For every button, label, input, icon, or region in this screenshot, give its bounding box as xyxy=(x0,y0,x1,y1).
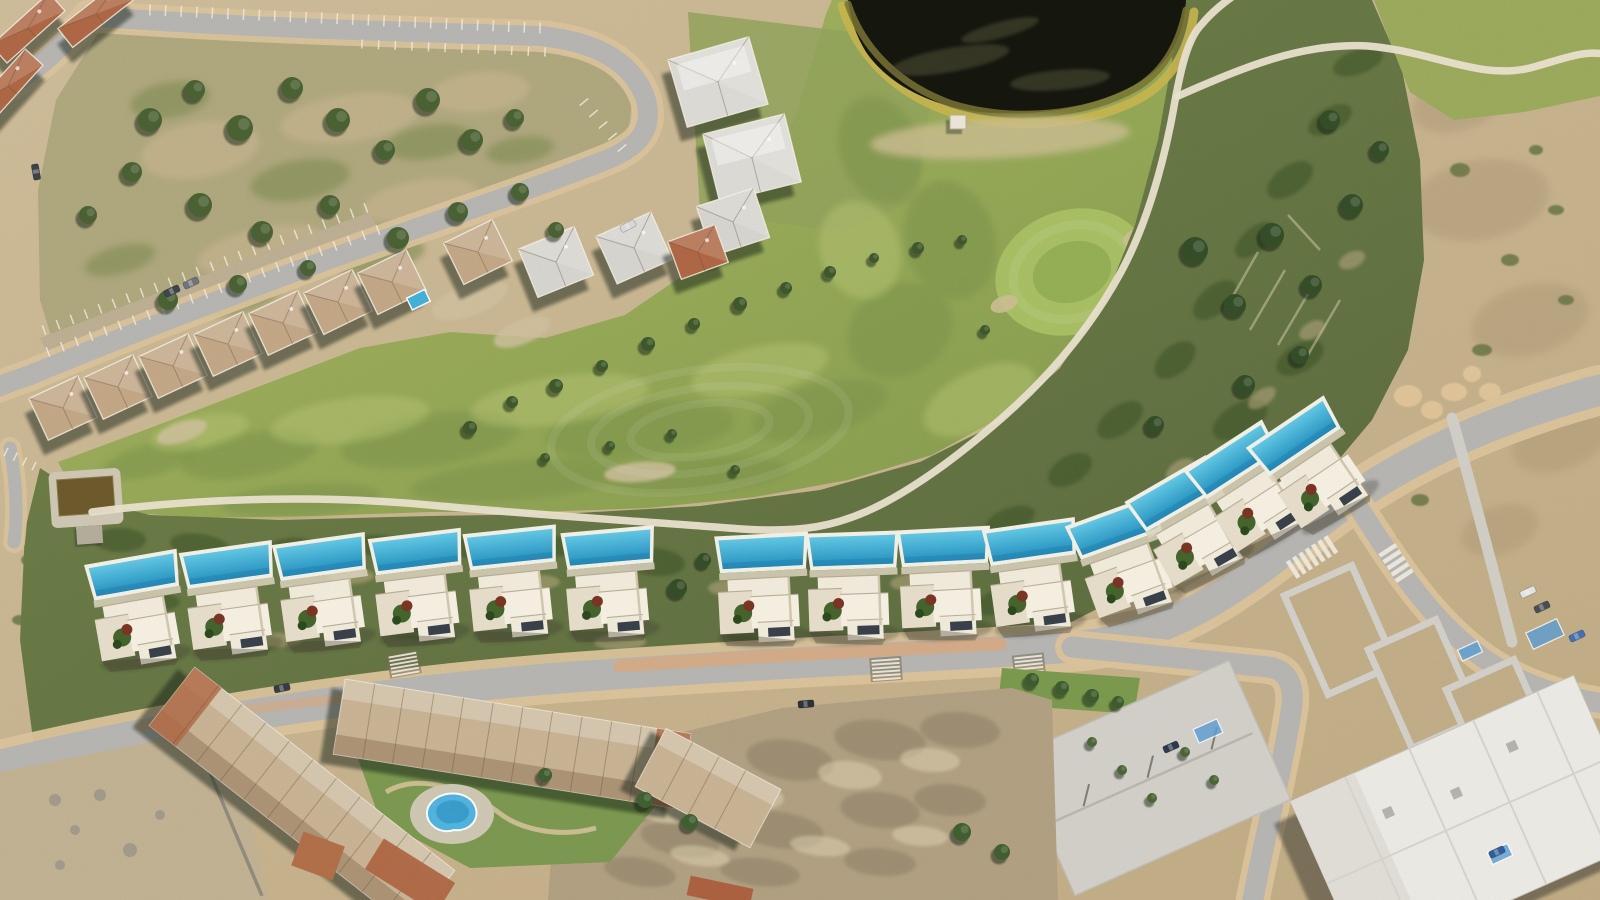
satellite-image xyxy=(0,0,1600,900)
aerial-photo-stage xyxy=(0,0,1600,900)
photo-grain xyxy=(0,0,1600,900)
